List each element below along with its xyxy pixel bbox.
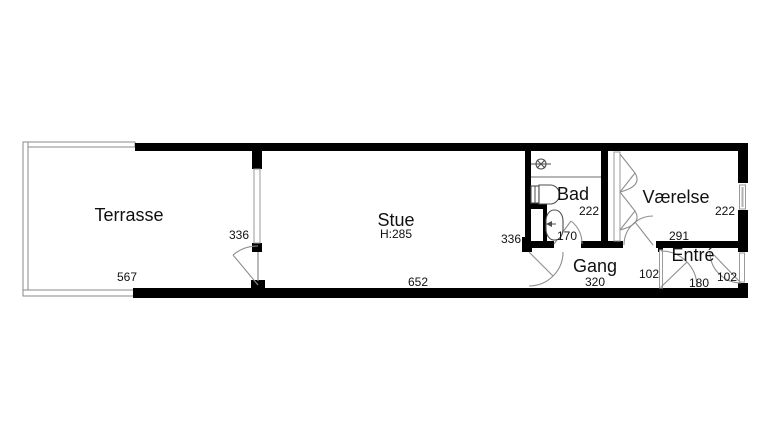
dim-terrasse-width: 567 [117,270,137,284]
floorplan: Terrasse Stue H:285 Bad Værelse Gang Ent… [0,0,768,422]
wall-terrasse-post-top [252,151,262,169]
entre-label: Entré [671,245,714,265]
interior-walls [251,151,748,289]
wall-right-lower [738,283,748,298]
wall-vaerelse-gang-left [608,241,623,248]
wall-terrasse-post-mid [252,243,262,252]
terrace-railing-left [23,142,28,296]
stue-gang-door-swing [529,252,563,286]
wall-top [135,143,748,151]
dim-entre-width: 180 [689,276,709,290]
floor-drain-symbol [531,159,551,169]
closet-front [614,152,620,241]
dim-vaerelse-width: 291 [669,229,689,243]
vaerelse-door-swing [624,216,653,245]
gang-entre-partition [660,250,663,288]
terrasse-label: Terrasse [94,205,163,225]
floorplan-svg: Terrasse Stue H:285 Bad Værelse Gang Ent… [0,0,768,422]
closet-door-leaves [620,154,635,230]
wall-stue-bad [525,151,531,252]
dim-gang-length: 320 [585,275,605,289]
dim-bad-width: 170 [557,229,577,243]
dim-stue-depth-east: 336 [501,232,521,246]
toilet-symbol [531,185,560,204]
stue-terrasse-window [254,169,260,243]
vaerelse-closet [614,152,637,241]
terrace-railing-top [23,142,135,147]
dim-stue-length: 652 [408,275,428,289]
wall-bad-vaerelse [601,151,608,248]
dim-gang-width: 102 [639,267,659,281]
bad-label: Bad [557,184,589,204]
wall-bottom [133,288,748,298]
dim-stue-depth-west: 336 [229,228,249,242]
wall-right-upper [738,143,748,183]
labels: Terrasse Stue H:285 Bad Værelse Gang Ent… [94,184,737,290]
vaerelse-label: Værelse [642,187,709,207]
doors [233,216,741,287]
wall-bad-gang-right [581,241,608,248]
stue-ceiling-height-label: H:285 [380,227,412,241]
dim-vaerelse-depth: 222 [715,204,735,218]
entre-door-sidelight [740,253,745,282]
bad-duct-shaft-inner [531,209,543,241]
terrace-railing-bottom [23,290,135,296]
dim-bad-depth: 222 [579,204,599,218]
gang-label: Gang [573,256,617,276]
dim-entre-door-width: 102 [717,270,737,284]
